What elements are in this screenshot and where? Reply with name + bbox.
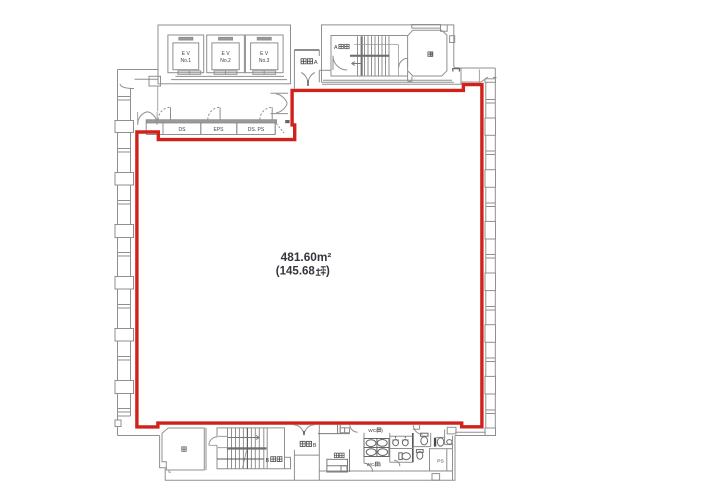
svg-text:(145.68: (145.68 bbox=[276, 266, 316, 278]
svg-text:A: A bbox=[334, 45, 338, 51]
svg-text:No.1: No.1 bbox=[181, 58, 192, 64]
svg-text:No.2: No.2 bbox=[220, 58, 231, 64]
svg-text:A: A bbox=[314, 60, 318, 66]
svg-text:DS. PS: DS. PS bbox=[248, 127, 265, 133]
svg-text:WC(: WC( bbox=[368, 428, 378, 434]
svg-text:EPS: EPS bbox=[213, 127, 224, 133]
svg-text:): ) bbox=[326, 266, 330, 278]
svg-text:DS: DS bbox=[179, 127, 187, 133]
svg-text:WC(: WC( bbox=[367, 462, 377, 468]
svg-text:PS: PS bbox=[437, 458, 443, 464]
svg-text:No.3: No.3 bbox=[259, 58, 270, 64]
svg-text:B: B bbox=[266, 458, 270, 464]
svg-text:E V: E V bbox=[260, 51, 269, 57]
svg-text:E V: E V bbox=[221, 51, 230, 57]
svg-text:E V: E V bbox=[182, 51, 191, 57]
svg-text:481.60m²: 481.60m² bbox=[281, 252, 332, 264]
svg-text:B: B bbox=[313, 443, 317, 449]
